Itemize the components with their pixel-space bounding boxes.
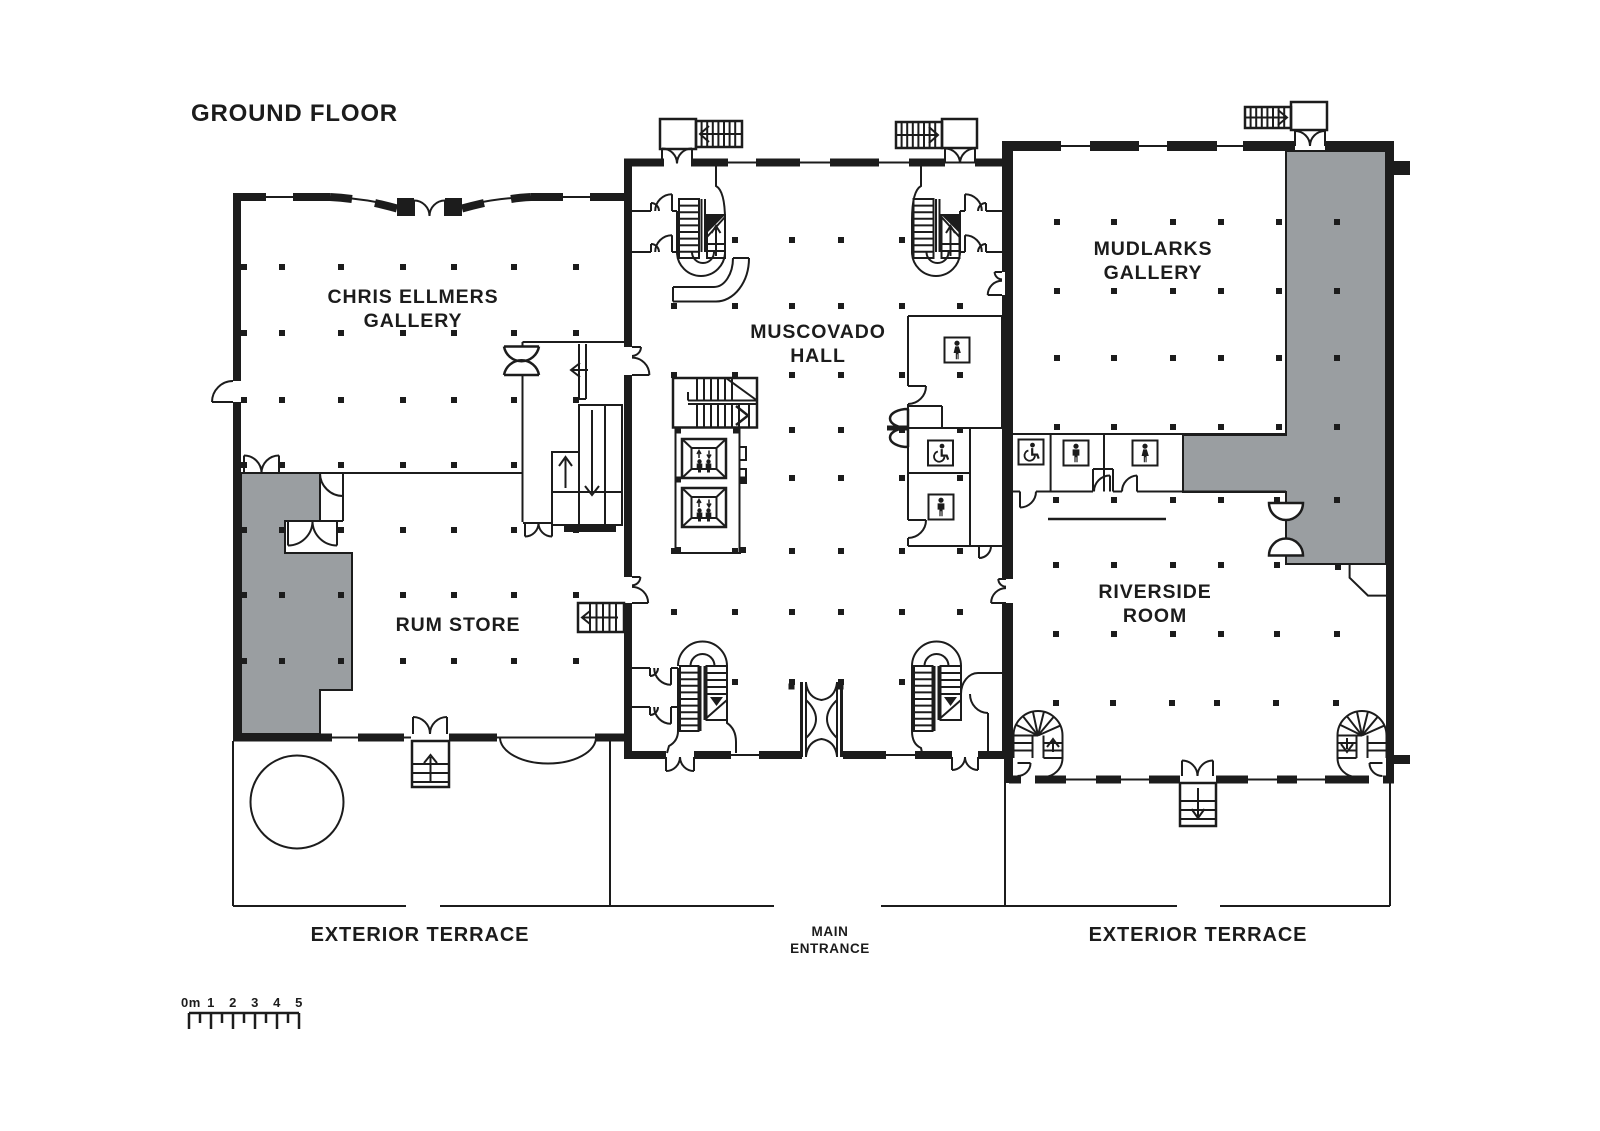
svg-text:GALLERY: GALLERY <box>364 310 463 332</box>
svg-text:MUDLARKS: MUDLARKS <box>1094 238 1213 260</box>
svg-text:GALLERY: GALLERY <box>1104 262 1203 284</box>
svg-text:EXTERIOR TERRACE: EXTERIOR TERRACE <box>1089 924 1308 946</box>
svg-text:4: 4 <box>273 995 281 1010</box>
svg-text:1: 1 <box>207 995 215 1010</box>
svg-text:CHRIS ELLMERS: CHRIS ELLMERS <box>328 286 499 308</box>
svg-text:MAIN: MAIN <box>812 924 849 939</box>
svg-text:3: 3 <box>251 995 259 1010</box>
svg-text:0m: 0m <box>181 995 201 1010</box>
svg-text:MUSCOVADO: MUSCOVADO <box>750 321 886 343</box>
svg-text:RUM STORE: RUM STORE <box>396 614 521 636</box>
svg-text:ROOM: ROOM <box>1123 605 1187 627</box>
svg-text:2: 2 <box>229 995 237 1010</box>
svg-text:HALL: HALL <box>790 345 846 367</box>
svg-text:GROUND FLOOR: GROUND FLOOR <box>191 100 398 127</box>
svg-text:RIVERSIDE: RIVERSIDE <box>1098 581 1211 603</box>
svg-text:EXTERIOR TERRACE: EXTERIOR TERRACE <box>311 924 530 946</box>
svg-text:ENTRANCE: ENTRANCE <box>790 941 870 956</box>
svg-text:5: 5 <box>295 995 303 1010</box>
